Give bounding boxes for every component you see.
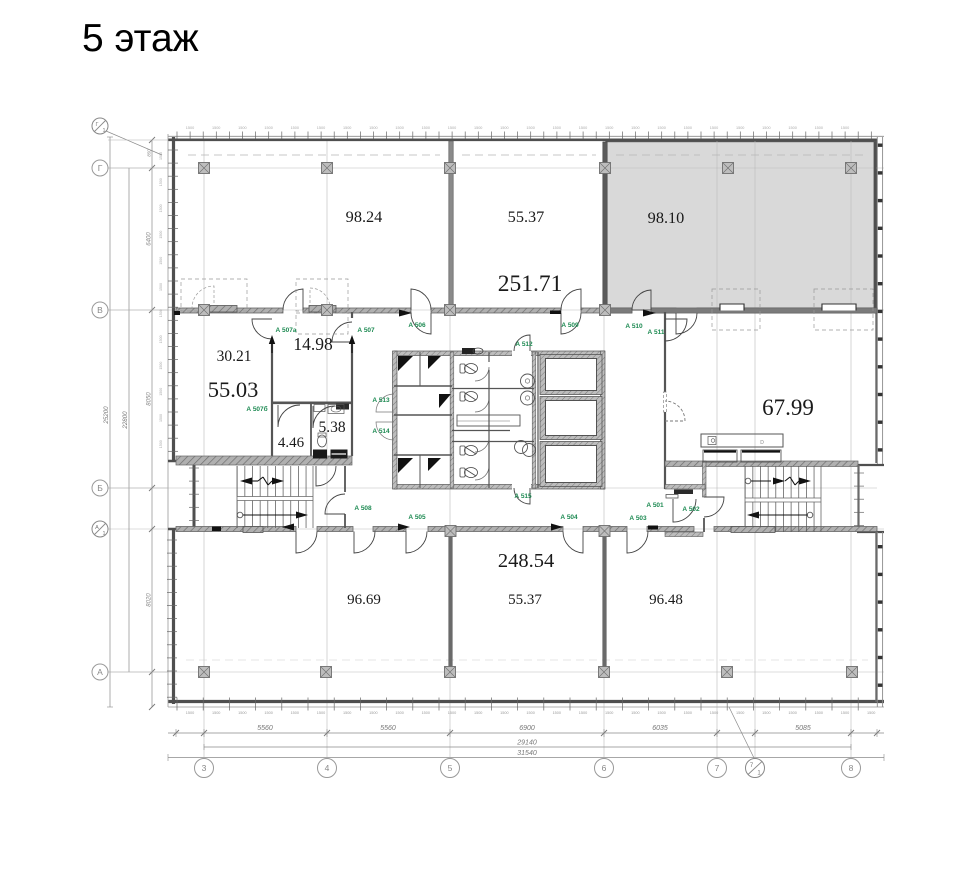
svg-text:55.37: 55.37 [508,592,542,608]
svg-text:1500: 1500 [762,126,770,130]
svg-text:1500: 1500 [474,711,482,715]
svg-text:А 508: А 508 [354,505,372,512]
svg-text:6400: 6400 [147,232,153,246]
svg-text:А 507: А 507 [357,327,375,334]
svg-text:А 502: А 502 [682,506,700,513]
svg-text:1500: 1500 [500,711,508,715]
svg-text:30.21: 30.21 [217,348,252,365]
svg-text:1500: 1500 [159,414,163,422]
svg-text:6900: 6900 [519,725,535,732]
svg-text:Г: Г [98,163,103,173]
svg-text:1500: 1500 [343,126,351,130]
svg-text:1500: 1500 [343,711,351,715]
svg-text:5 этаж: 5 этаж [82,17,199,60]
svg-text:1500: 1500 [710,711,718,715]
svg-text:7: 7 [715,763,720,773]
svg-text:1500: 1500 [159,440,163,448]
svg-text:1500: 1500 [291,126,299,130]
svg-text:1500: 1500 [159,388,163,396]
svg-text:1500: 1500 [159,231,163,239]
svg-text:3: 3 [202,763,207,773]
svg-text:1500: 1500 [395,126,403,130]
svg-text:1500: 1500 [788,711,796,715]
svg-text:1500: 1500 [448,711,456,715]
svg-text:22800: 22800 [122,411,129,430]
svg-text:4: 4 [325,763,330,773]
svg-text:Б: Б [97,483,103,493]
svg-text:Г: Г [96,122,99,128]
svg-text:1500: 1500 [526,711,534,715]
svg-text:1500: 1500 [710,126,718,130]
svg-text:1500: 1500 [815,126,823,130]
svg-text:1500: 1500 [212,126,220,130]
svg-text:1500: 1500 [264,711,272,715]
svg-text:1500: 1500 [159,309,163,317]
svg-text:1500: 1500 [395,711,403,715]
svg-text:А 512: А 512 [515,341,533,348]
svg-text:8: 8 [849,763,854,773]
svg-text:1500: 1500 [212,711,220,715]
svg-text:1500: 1500 [422,126,430,130]
svg-text:1500: 1500 [264,126,272,130]
svg-text:D: D [760,440,764,446]
svg-text:1500: 1500 [159,362,163,370]
svg-text:5.38: 5.38 [318,419,345,436]
svg-text:1500: 1500 [159,204,163,212]
svg-text:1500: 1500 [736,126,744,130]
svg-text:А 509: А 509 [561,322,579,329]
svg-text:31540: 31540 [517,750,537,757]
svg-text:1500: 1500 [500,126,508,130]
svg-text:96.69: 96.69 [347,592,381,608]
svg-text:5560: 5560 [380,725,396,732]
svg-text:А 510: А 510 [625,323,643,330]
svg-text:98.10: 98.10 [648,208,685,227]
svg-text:1500: 1500 [317,711,325,715]
svg-text:25200: 25200 [103,406,110,425]
svg-text:1500: 1500 [736,711,744,715]
svg-text:251.71: 251.71 [498,271,563,297]
svg-text:1500: 1500 [553,126,561,130]
svg-text:1500: 1500 [422,711,430,715]
svg-text:6: 6 [602,763,607,773]
svg-text:А 505: А 505 [408,514,426,521]
svg-text:1: 1 [102,531,105,537]
svg-text:1500: 1500 [369,711,377,715]
svg-text:А 513: А 513 [372,397,390,404]
svg-text:8020: 8020 [147,593,153,607]
svg-text:5560: 5560 [257,725,273,732]
svg-text:1500: 1500 [238,711,246,715]
svg-text:1500: 1500 [605,711,613,715]
svg-text:67.99: 67.99 [762,395,814,420]
svg-text:1500: 1500 [159,178,163,186]
svg-text:А: А [95,525,99,531]
svg-text:1500: 1500 [657,126,665,130]
svg-text:248.54: 248.54 [498,550,554,572]
svg-text:1500: 1500 [788,126,796,130]
svg-text:1500: 1500 [815,711,823,715]
svg-text:1500: 1500 [867,711,875,715]
svg-text:1: 1 [102,128,105,134]
svg-text:1500: 1500 [605,126,613,130]
svg-text:98.24: 98.24 [346,207,383,226]
svg-text:1500: 1500 [579,126,587,130]
svg-text:1500: 1500 [579,711,587,715]
svg-text:1500: 1500 [684,126,692,130]
svg-text:1500: 1500 [159,283,163,291]
svg-text:1500: 1500 [291,711,299,715]
svg-text:А 504: А 504 [560,514,578,521]
svg-text:1500: 1500 [553,711,561,715]
svg-text:А 515: А 515 [514,493,532,500]
svg-text:1500: 1500 [841,126,849,130]
svg-text:А: А [97,667,103,677]
svg-text:1500: 1500 [159,152,163,160]
svg-text:1500: 1500 [159,335,163,343]
svg-text:1500: 1500 [448,126,456,130]
svg-text:1500: 1500 [631,126,639,130]
svg-text:А 507а: А 507а [276,327,297,334]
svg-text:5085: 5085 [795,725,811,732]
svg-text:1500: 1500 [684,711,692,715]
svg-text:55.37: 55.37 [508,207,545,226]
svg-text:А 514: А 514 [372,428,390,435]
svg-text:6035: 6035 [652,725,668,732]
svg-text:1500: 1500 [369,126,377,130]
svg-text:4.46: 4.46 [278,435,305,451]
svg-text:5: 5 [448,763,453,773]
svg-text:1500: 1500 [186,711,194,715]
svg-text:1500: 1500 [317,126,325,130]
svg-text:55.03: 55.03 [208,377,259,402]
svg-text:А 503: А 503 [629,515,647,522]
svg-text:96.48: 96.48 [649,592,683,608]
svg-text:1500: 1500 [159,257,163,265]
svg-text:1500: 1500 [238,126,246,130]
svg-text:А 506: А 506 [408,322,426,329]
svg-text:1500: 1500 [762,711,770,715]
svg-text:8050: 8050 [147,392,153,406]
svg-text:1500: 1500 [186,126,194,130]
svg-text:1500: 1500 [657,711,665,715]
svg-text:А 501: А 501 [646,502,664,509]
svg-text:1500: 1500 [526,126,534,130]
svg-text:А 507б: А 507б [246,405,267,413]
svg-text:1500: 1500 [841,711,849,715]
svg-text:14.98: 14.98 [293,334,333,354]
svg-text:29140: 29140 [516,740,537,747]
svg-text:1500: 1500 [474,126,482,130]
svg-text:1500: 1500 [631,711,639,715]
svg-text:А 511: А 511 [648,329,665,336]
svg-text:В: В [97,305,103,315]
